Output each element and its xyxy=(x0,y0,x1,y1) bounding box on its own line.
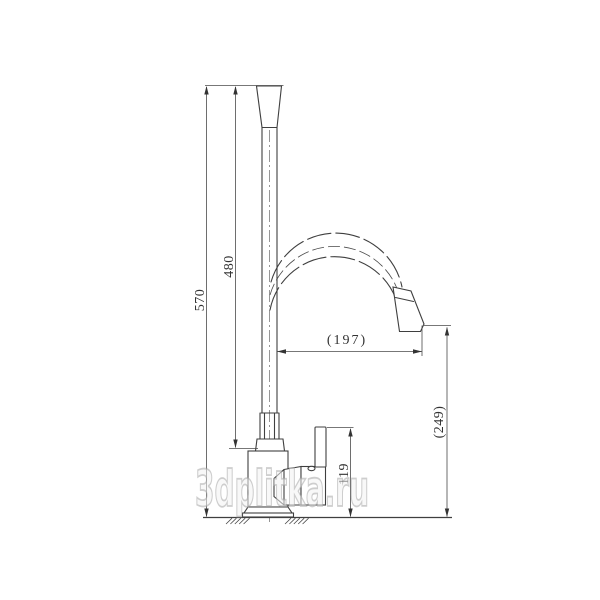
handle-housing xyxy=(301,466,326,505)
housing-box xyxy=(301,467,326,506)
dim-label-480: 480 xyxy=(222,255,237,278)
spout-top-cone xyxy=(257,86,282,128)
dimension-total-height: 570 xyxy=(193,86,209,517)
riser-pipe xyxy=(256,128,285,452)
handle-pivot xyxy=(308,466,315,470)
arrowhead-down-icon xyxy=(348,509,352,518)
dimension-spout-height: 480 xyxy=(222,86,258,449)
arrowhead-up-icon xyxy=(233,86,237,95)
arrowhead-down-icon xyxy=(204,509,208,518)
handle-lever xyxy=(315,427,326,467)
spray-nozzle xyxy=(393,287,424,332)
dim-label-249: (249) xyxy=(432,406,447,439)
riser-nut xyxy=(256,439,285,451)
mounting-surface xyxy=(203,518,452,525)
arrowhead-up-icon xyxy=(348,428,352,437)
surface-hatching-left xyxy=(226,518,250,524)
arrowhead-up-icon xyxy=(204,86,208,95)
dim-label-570: 570 xyxy=(193,289,208,312)
arrowhead-right-icon xyxy=(413,349,422,353)
arrowhead-down-icon xyxy=(233,440,237,449)
flange-cone xyxy=(244,507,292,513)
dimension-outlet-height: (249) xyxy=(424,326,451,518)
dimension-handle-height: 119 xyxy=(327,428,354,518)
arrowhead-up-icon xyxy=(445,327,449,336)
surface-hatching-right xyxy=(285,518,309,524)
hose-outer-arc xyxy=(271,233,402,287)
arrowhead-down-icon xyxy=(445,509,449,518)
hose-center-arc xyxy=(270,246,399,295)
drawing-canvas: 570 480 (197) (249) xyxy=(0,0,600,600)
dim-label-119: 119 xyxy=(337,463,352,485)
arrowhead-left-icon xyxy=(277,349,286,353)
nozzle-body xyxy=(393,287,424,332)
base-flange xyxy=(243,507,294,517)
faucet-outline xyxy=(243,86,425,524)
faucet-technical-drawing: 570 480 (197) (249) xyxy=(0,0,600,600)
flexible-spout-hose xyxy=(270,233,402,310)
base-plate xyxy=(243,513,294,517)
dim-label-197: (197) xyxy=(327,333,367,348)
